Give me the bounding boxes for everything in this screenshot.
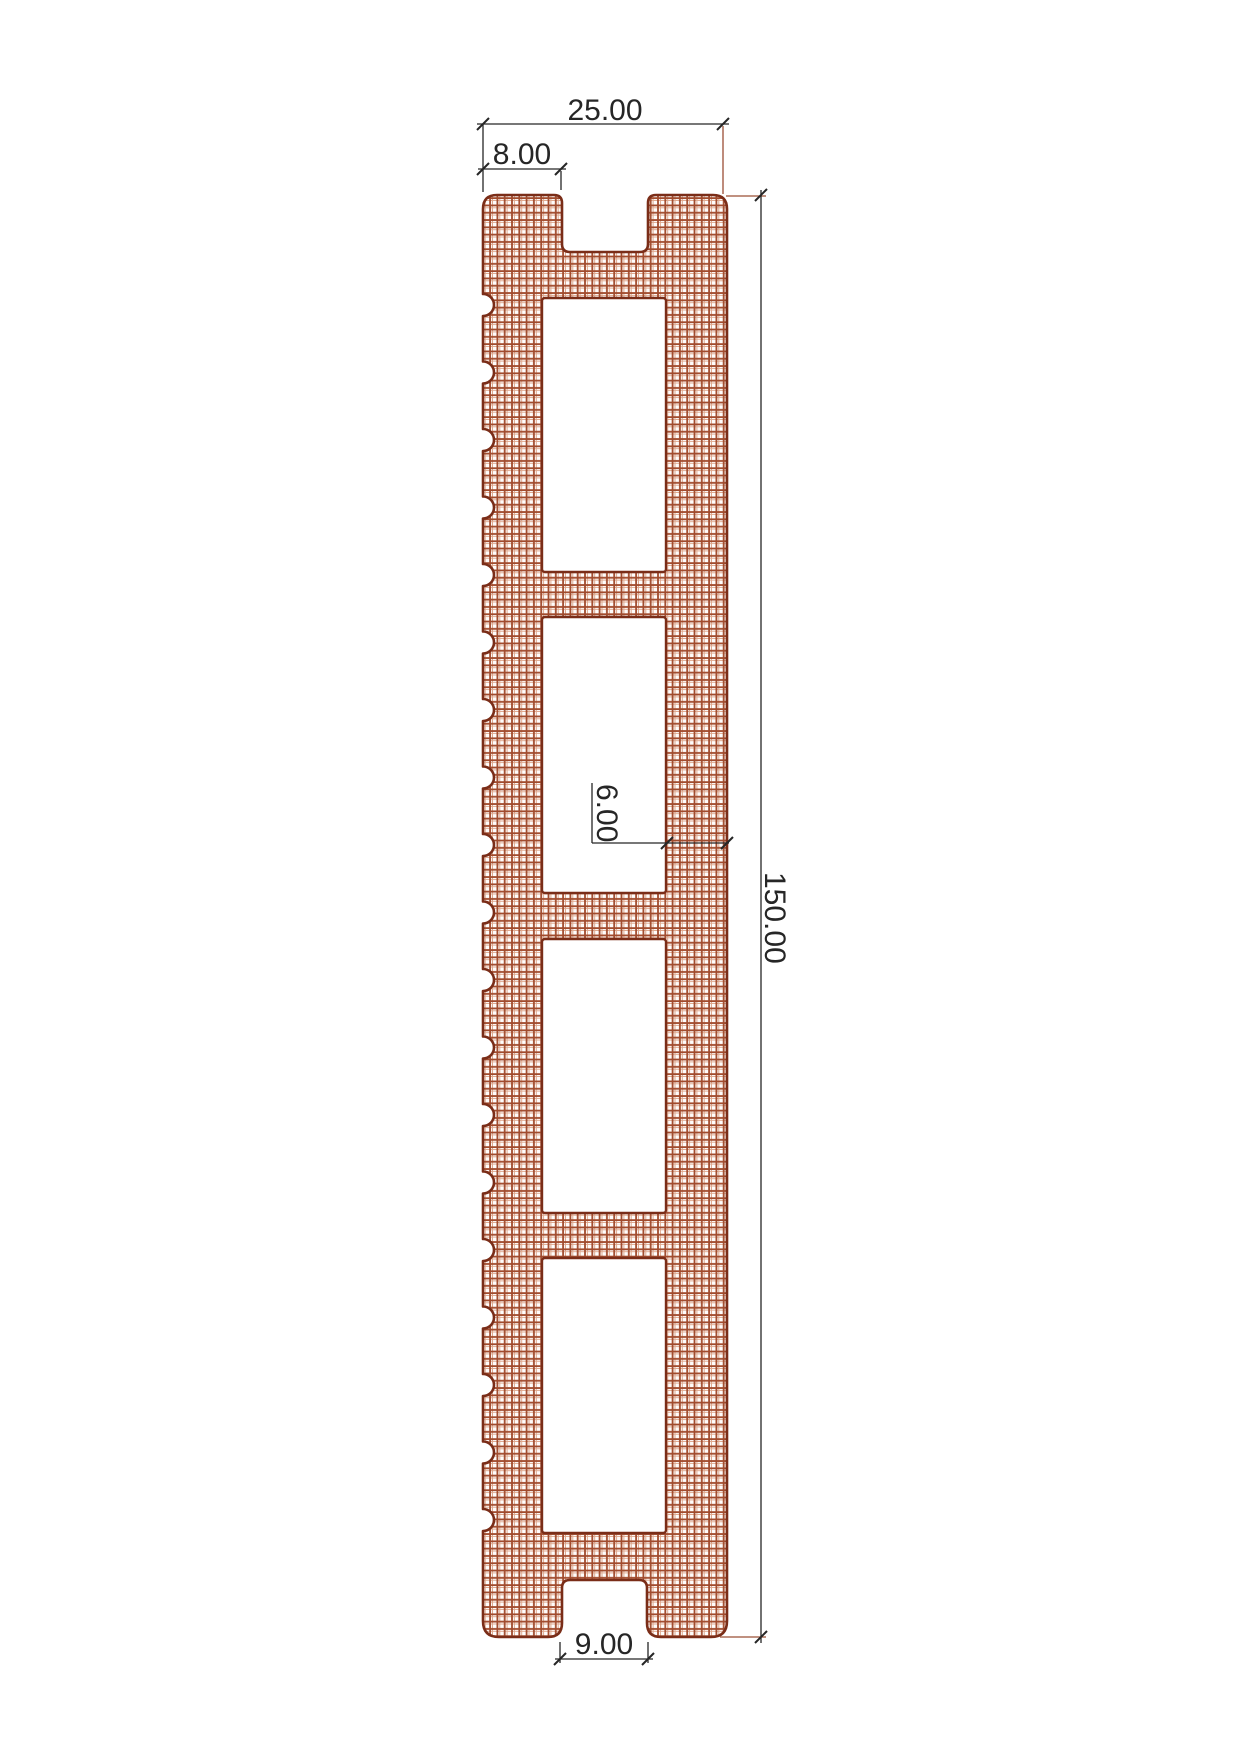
hollow-chamber-4	[542, 1258, 666, 1533]
dimension-label-groove-offset: 8.00	[493, 138, 551, 171]
dimension-label-wall-thickness: 6.00	[590, 784, 623, 842]
cad-profile-drawing: 25.00 8.00 150.00 6.00 9.00	[0, 0, 1241, 1755]
dimension-label-overall-length: 150.00	[758, 872, 791, 964]
dimension-label-overall-width: 25.00	[567, 94, 642, 127]
hollow-chamber-1	[542, 298, 666, 572]
hollow-chamber-3	[542, 939, 666, 1213]
hollow-chamber-2	[542, 617, 666, 893]
dimension-label-bottom-groove: 9.00	[575, 1628, 633, 1661]
